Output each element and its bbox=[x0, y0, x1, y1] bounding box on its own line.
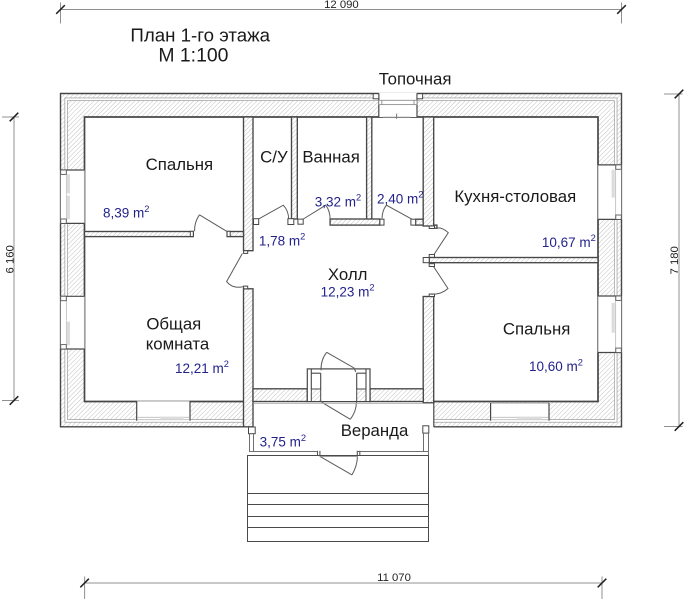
svg-text:Топочная: Топочная bbox=[379, 69, 452, 88]
svg-text:Веранда: Веранда bbox=[341, 421, 409, 440]
svg-text:7 180: 7 180 bbox=[669, 246, 681, 274]
svg-text:12 090: 12 090 bbox=[324, 0, 359, 11]
svg-text:комната: комната bbox=[146, 335, 210, 354]
svg-text:С/У: С/У bbox=[260, 148, 288, 167]
svg-text:Общая: Общая bbox=[146, 315, 201, 334]
svg-text:Холл: Холл bbox=[328, 265, 368, 284]
svg-text:11 070: 11 070 bbox=[377, 572, 411, 584]
svg-text:6 160: 6 160 bbox=[5, 245, 17, 273]
svg-text:12,23 m2: 12,23 m2 bbox=[321, 283, 375, 300]
svg-text:Ванная: Ванная bbox=[302, 148, 359, 167]
svg-text:Спальня: Спальня bbox=[503, 320, 570, 339]
svg-text:10,67 m2: 10,67 m2 bbox=[542, 233, 596, 250]
svg-text:М 1:100: М 1:100 bbox=[158, 44, 228, 66]
svg-text:3,75 m2: 3,75 m2 bbox=[260, 433, 306, 450]
svg-text:10,60 m2: 10,60 m2 bbox=[529, 357, 583, 374]
svg-text:Кухня-столовая: Кухня-столовая bbox=[454, 187, 576, 206]
svg-text:2,40 m2: 2,40 m2 bbox=[377, 190, 423, 207]
svg-text:1,78 m2: 1,78 m2 bbox=[259, 232, 305, 249]
svg-text:8,39 m2: 8,39 m2 bbox=[103, 204, 149, 221]
svg-text:3,32 m2: 3,32 m2 bbox=[315, 193, 361, 210]
svg-text:Спальня: Спальня bbox=[146, 155, 213, 174]
svg-text:План 1-го этажа: План 1-го этажа bbox=[130, 25, 270, 46]
svg-text:12,21 m2: 12,21 m2 bbox=[175, 359, 229, 376]
